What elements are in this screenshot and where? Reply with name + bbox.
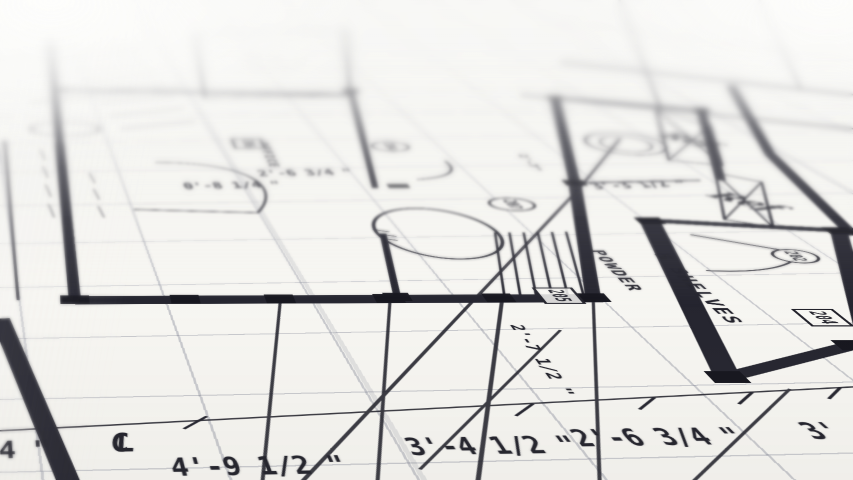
dim-office-width: 2'-6 3/4 " xyxy=(255,168,356,179)
dim-bottom-partial: 4 " xyxy=(0,436,52,465)
perspective-scene: OFFICE POWDER 5 SHELVES 206 205 204 204 … xyxy=(0,0,853,480)
dim-bottom-1: 4'-9 1/2 " xyxy=(167,451,352,480)
room-number-206: 206 xyxy=(238,140,258,147)
dim-office-offset: 0'-8 1/4 " xyxy=(181,180,284,191)
blueprint-photo: OFFICE POWDER 5 SHELVES 206 205 204 204 … xyxy=(0,0,853,480)
door-number-207: 207 xyxy=(498,200,525,209)
door-number-202: 202 xyxy=(779,251,812,261)
plan-linework xyxy=(0,0,853,480)
wall-posts xyxy=(52,88,853,383)
dim-bottom-2: 3'-4 1/2 " xyxy=(400,431,588,461)
room-number-204: 204 xyxy=(803,311,842,324)
hatched-walls xyxy=(0,40,853,480)
dimension-ticks xyxy=(176,387,853,429)
room-tag-office: 206 xyxy=(231,139,266,149)
dim-bottom-3: 2'-6 3/4 " xyxy=(564,423,755,452)
background-lines-top-right xyxy=(502,0,853,110)
door-number-204: 204 xyxy=(380,143,401,149)
oval-table xyxy=(339,184,529,261)
left-wall-notes xyxy=(40,149,104,217)
small-door-arc xyxy=(403,161,462,180)
room-number-205: 205 xyxy=(542,290,575,302)
stipple-room xyxy=(178,30,405,97)
floor-plan-sheet: OFFICE POWDER 5 SHELVES 206 205 204 204 … xyxy=(0,0,853,480)
